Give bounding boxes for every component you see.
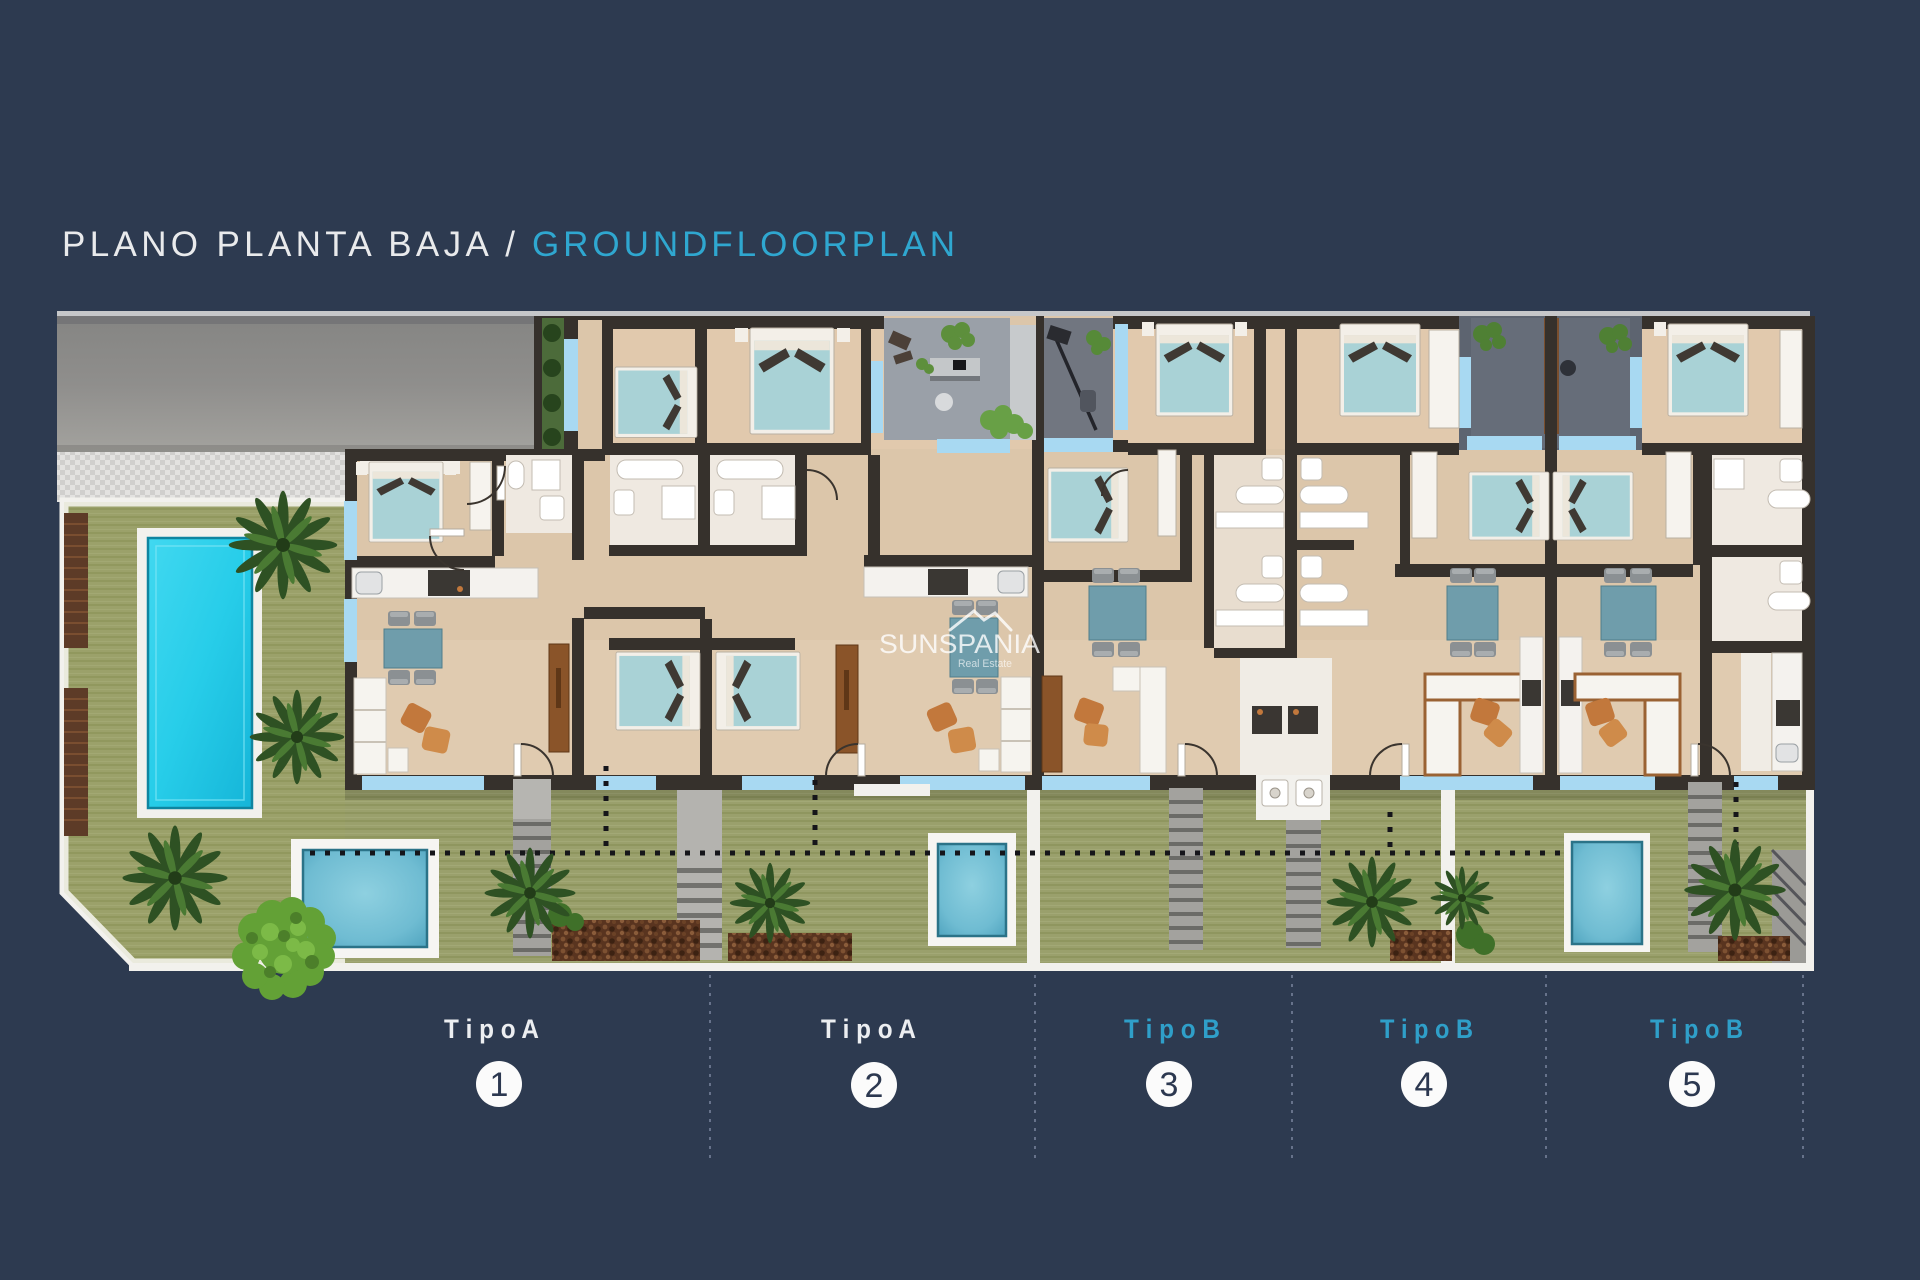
- svg-text:GROUNDFLOORPLAN: GROUNDFLOORPLAN: [532, 225, 955, 264]
- svg-text:PLANO PLANTA BAJA /: PLANO PLANTA BAJA /: [62, 225, 515, 264]
- svg-text:Real Estate: Real Estate: [958, 658, 1012, 670]
- svg-text:4: 4: [1415, 1066, 1434, 1104]
- svg-text:T i p o A: T i p o A: [821, 1014, 916, 1044]
- svg-text:5: 5: [1683, 1066, 1702, 1104]
- svg-text:T i p o B: T i p o B: [1124, 1014, 1220, 1044]
- svg-text:2: 2: [865, 1067, 884, 1105]
- svg-text:T i p o B: T i p o B: [1380, 1014, 1473, 1044]
- svg-text:T i p o B: T i p o B: [1650, 1014, 1743, 1044]
- svg-text:SUNSPANIA: SUNSPANIA: [879, 629, 1040, 659]
- svg-text:T i p o A: T i p o A: [444, 1014, 539, 1044]
- svg-text:1: 1: [490, 1066, 509, 1104]
- svg-text:3: 3: [1160, 1066, 1179, 1104]
